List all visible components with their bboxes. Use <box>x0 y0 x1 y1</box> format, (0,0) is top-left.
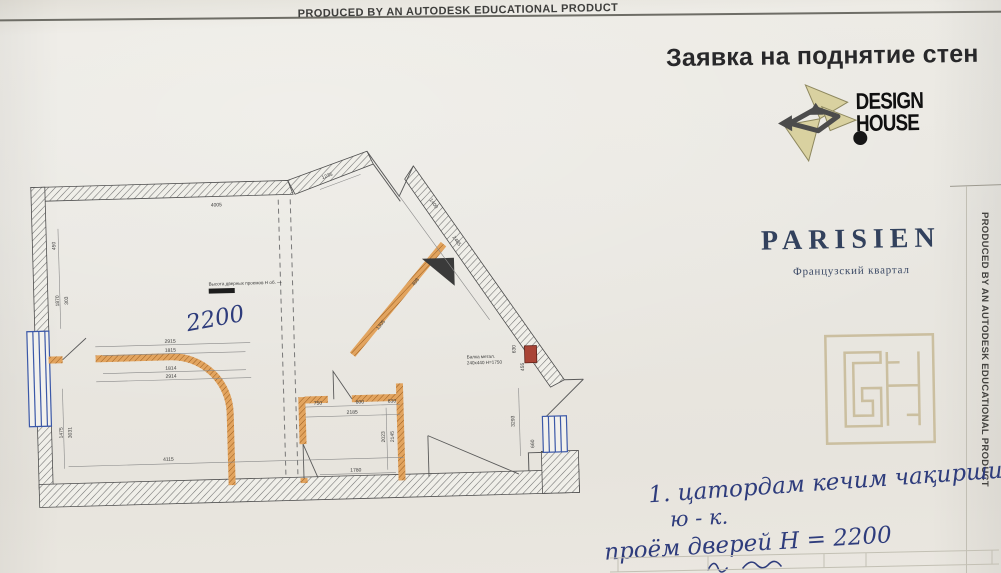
dashed-reference-lines <box>278 199 298 477</box>
dimension-label: 2023 <box>381 431 387 443</box>
door-leaves <box>62 326 519 487</box>
handwritten-note-line2: ю - к. <box>669 504 728 531</box>
parisien-logo: PARISIEN Французский квартал <box>756 222 947 278</box>
handwritten-2200: 2200 <box>183 301 246 338</box>
page-title: Заявка на поднятие стен <box>666 40 966 73</box>
plan-printed-note: Высота дверных проемов Н об. — <box>208 280 282 287</box>
floor-plan: Высота дверных проемов Н об. — 2200 Балк… <box>15 134 596 535</box>
vent-shaft-triangle <box>422 258 455 287</box>
window-left <box>27 331 52 427</box>
dimension-label: 660 <box>530 439 536 448</box>
dimension-label: 750 <box>314 401 323 407</box>
dimension-label: 630 <box>388 398 397 404</box>
dimension-label: 4005 <box>211 202 223 208</box>
dimension-label: 4115 <box>163 457 174 463</box>
parisien-wordmark: PARISIEN <box>756 222 947 257</box>
dimension-label: 630 <box>511 345 517 354</box>
dimension-label: 1475 <box>58 427 64 439</box>
redaction-mark <box>209 288 235 294</box>
dimension-label: 1815 <box>165 348 177 354</box>
dimension-label: 1780 <box>350 467 362 473</box>
red-column <box>524 346 536 363</box>
design-house-logo: DESIGN HOUSE <box>775 79 946 164</box>
beam-label-line1: Балка метал. <box>467 354 495 360</box>
existing-walls <box>30 146 579 508</box>
dimension-label: 2185 <box>347 410 359 416</box>
dimension-label: 2915 <box>165 339 177 345</box>
dimension-label: 455 <box>520 362 526 371</box>
dimension-lines <box>57 170 521 482</box>
dimension-label: 303 <box>64 296 70 305</box>
design-house-line2: HOUSE <box>856 111 924 134</box>
design-house-wordmark: DESIGN HOUSE <box>855 89 923 134</box>
dimension-labels: 4005450187030314753031291518151814291441… <box>50 166 537 482</box>
title-block-table-faint <box>608 546 1001 573</box>
sheet-frame-right-line <box>966 186 967 573</box>
dimension-label: 450 <box>51 241 57 250</box>
photo-of-drawing-sheet: { "banner": { "top_text": "PRODUCED BY A… <box>0 0 1001 573</box>
window-right <box>542 416 567 453</box>
dimension-label: 2914 <box>165 374 177 380</box>
dimension-label: 1870 <box>55 295 61 307</box>
dimension-label: 800 <box>356 399 365 405</box>
gh-monogram-watermark <box>821 330 939 448</box>
dimension-label: 3031 <box>67 427 73 439</box>
dimension-label: 1814 <box>165 366 177 372</box>
beam-label-line2: 240х440 Н=1750 <box>467 359 503 365</box>
dimension-label: 3293 <box>510 415 516 427</box>
dimension-label: 2145 <box>390 431 396 443</box>
